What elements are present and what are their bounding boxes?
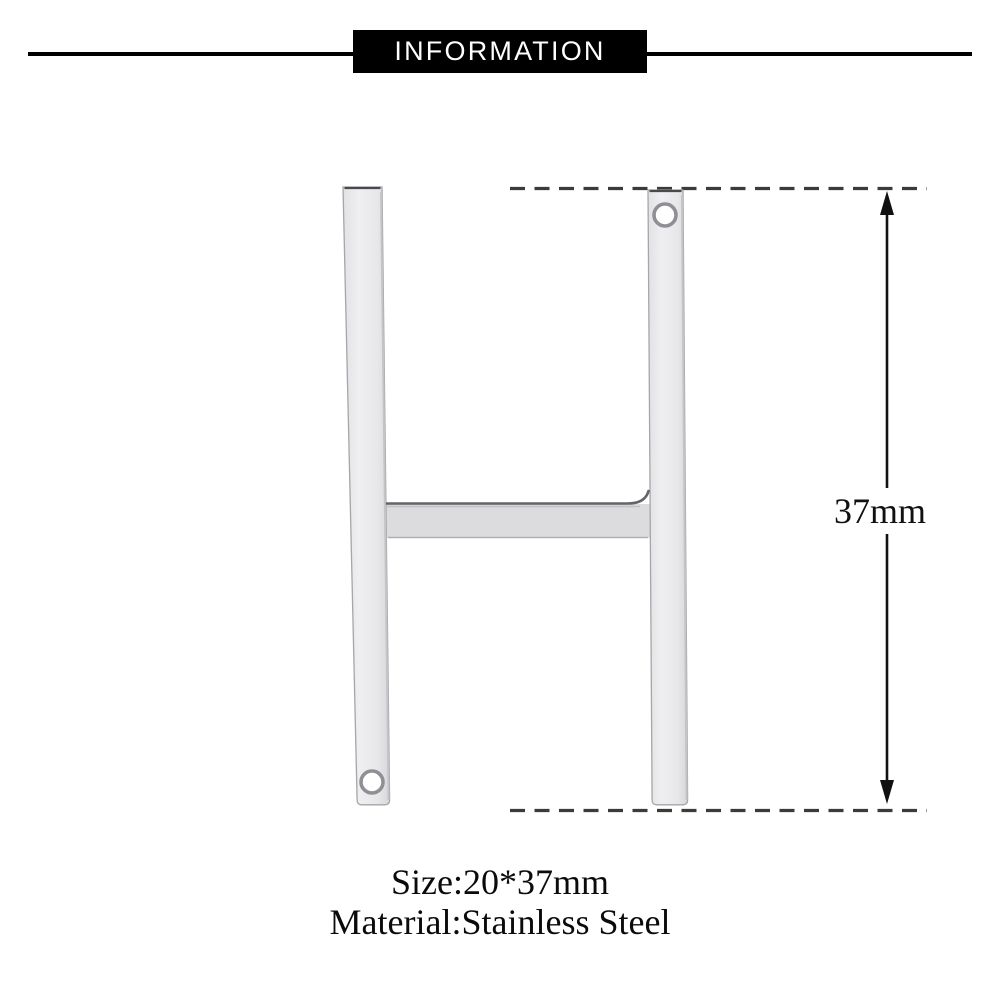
dimension-arrow-head-down-icon [880, 780, 894, 804]
size-text: Size:20*37mm [0, 862, 1000, 902]
pendant-hole-bottom [361, 771, 383, 793]
product-info-card: INFORMATION [0, 0, 1000, 1000]
dimension-arrow-head-up-icon [880, 191, 894, 215]
material-text: Material:Stainless Steel [0, 902, 1000, 942]
dimension-label: 37mm [820, 488, 940, 534]
pendant-crossbar [385, 504, 651, 538]
product-details: Size:20*37mm Material:Stainless Steel [0, 862, 1000, 942]
pendant-letter-h [343, 187, 688, 805]
pendant-hole-top [654, 204, 676, 226]
crossbar-top-shadow [387, 491, 649, 504]
